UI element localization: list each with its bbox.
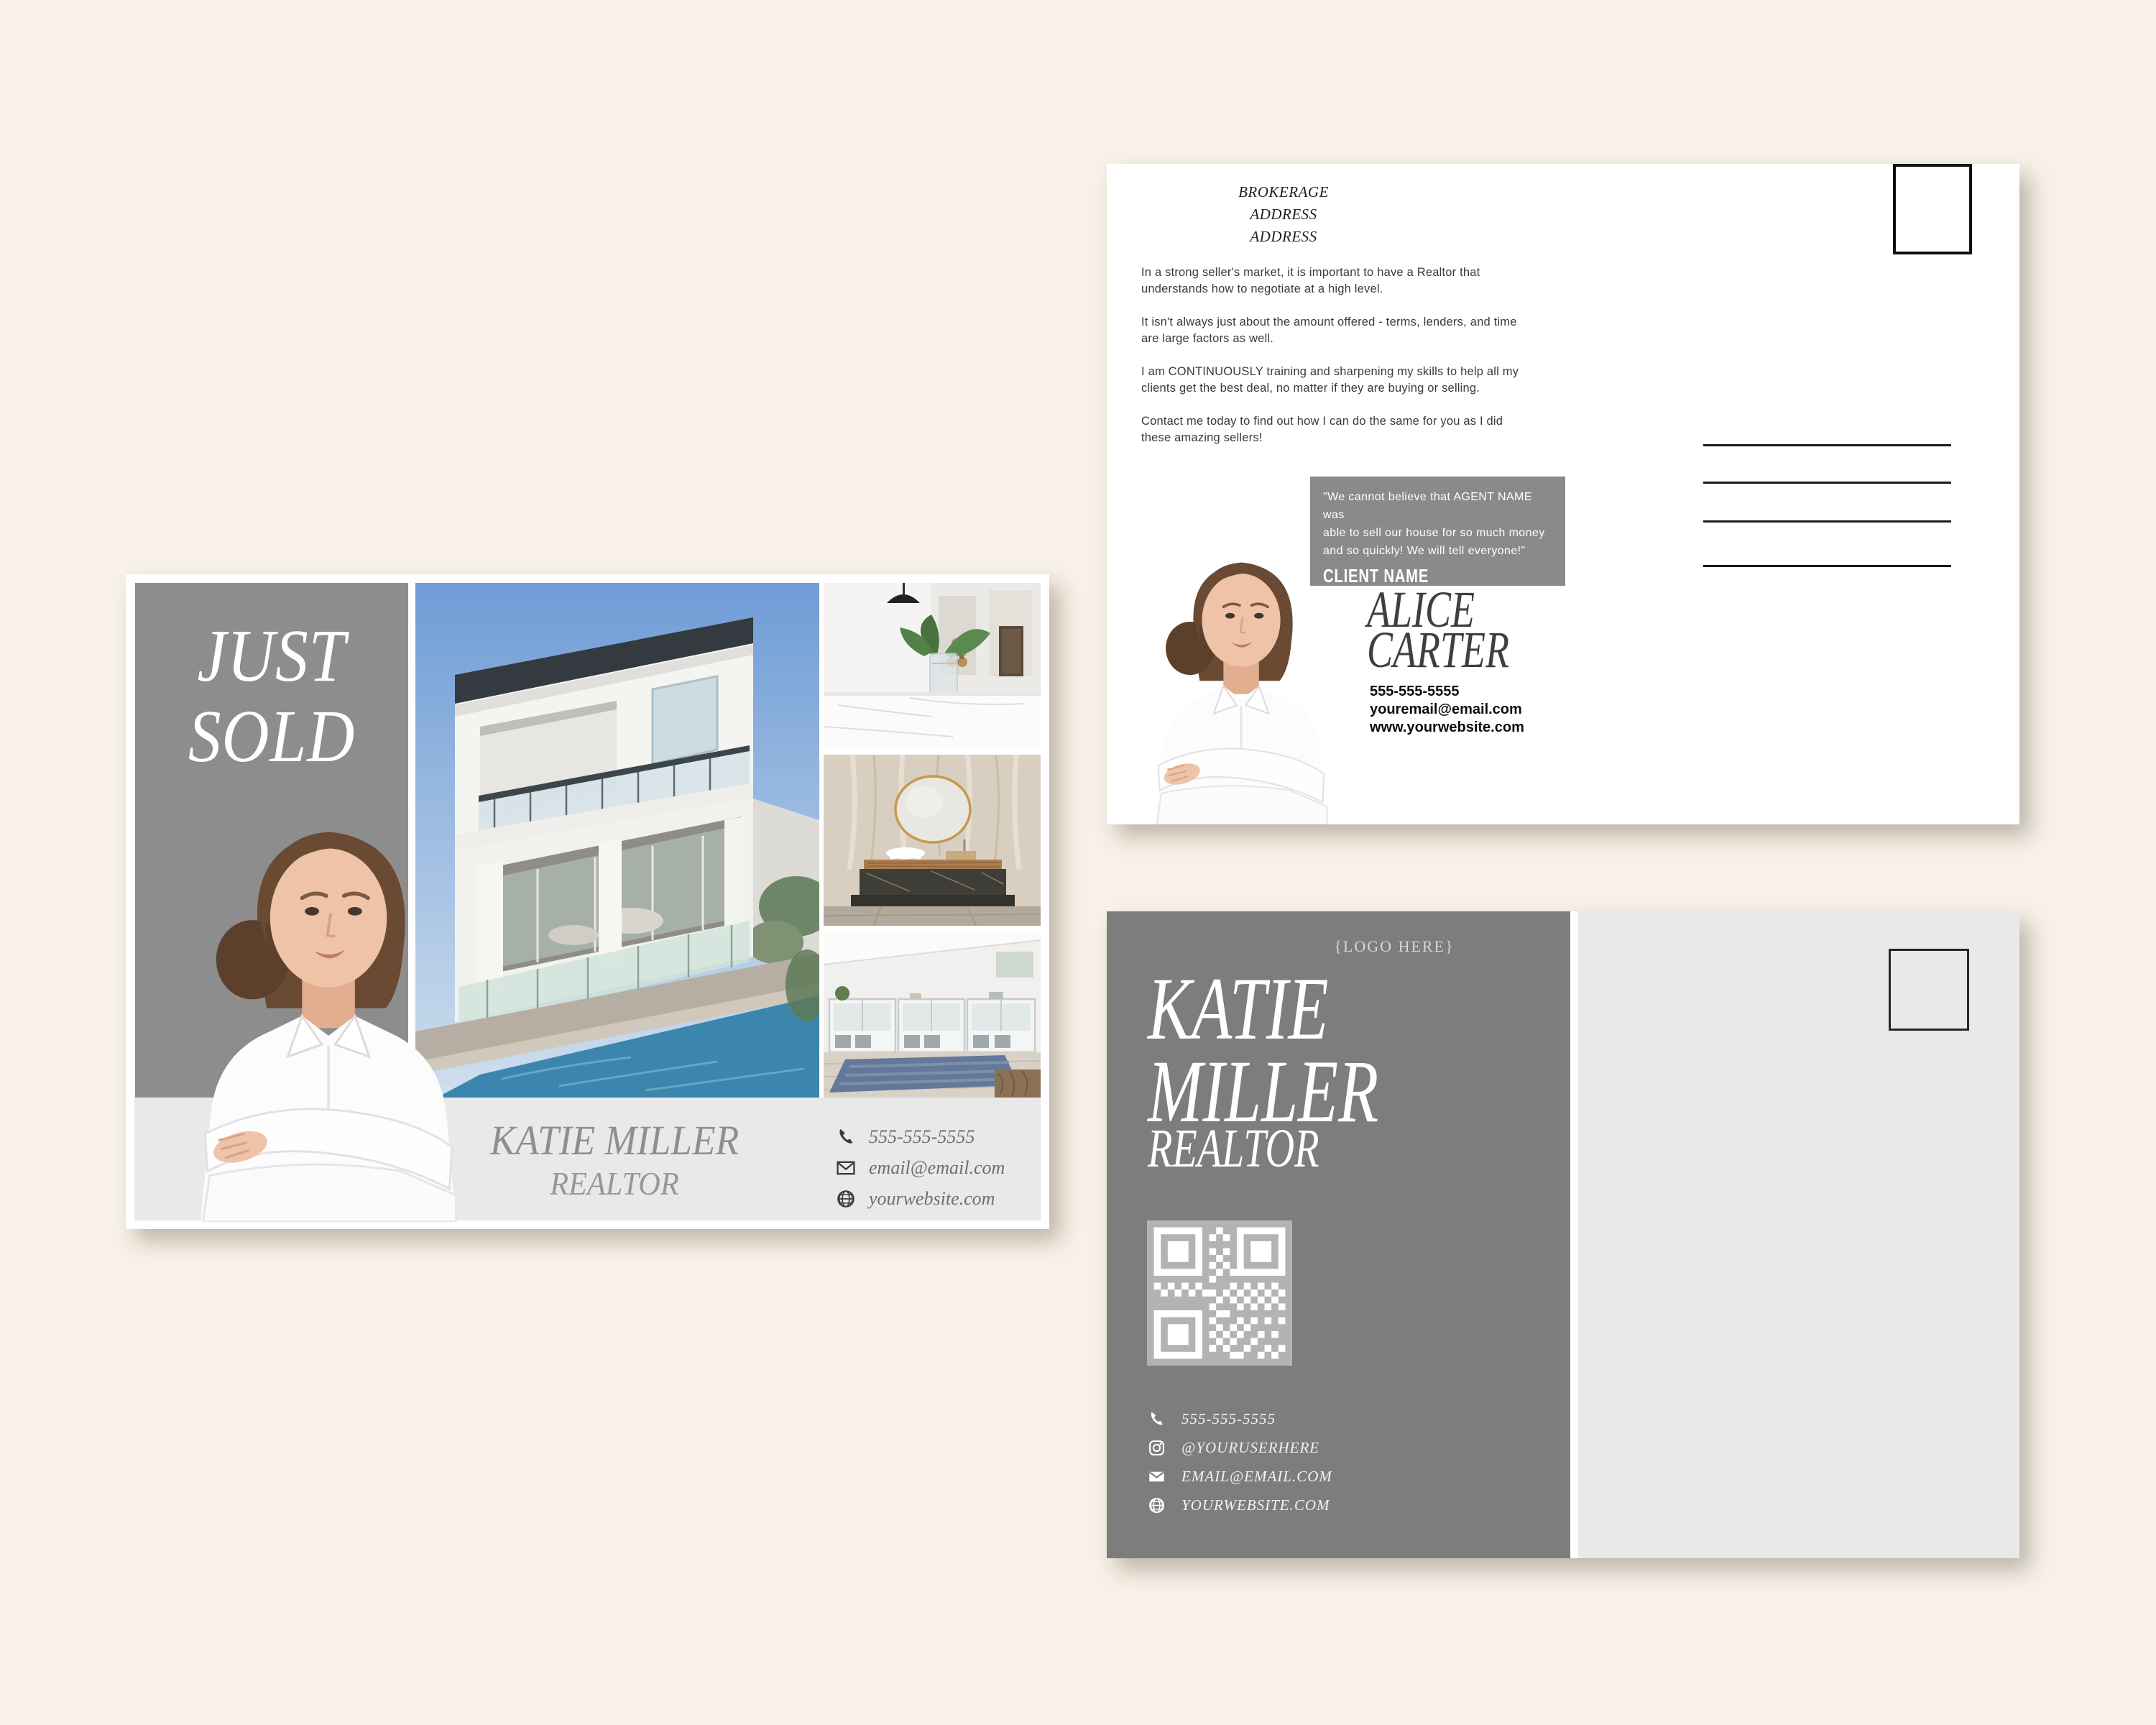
agent-photo-front <box>139 781 514 1222</box>
address-line-1: ADDRESS <box>1190 203 1377 226</box>
branding-instagram-row: @YOURUSERHERE <box>1148 1433 1332 1462</box>
agent-portrait-illustration <box>139 781 514 1222</box>
instagram-icon <box>1148 1439 1166 1457</box>
phone-icon <box>1148 1410 1166 1428</box>
logo-placeholder: {LOGO HERE} <box>1294 937 1495 956</box>
front-website-row: yourwebsite.com <box>836 1187 1005 1211</box>
marketing-message: In a strong seller's market, it is impor… <box>1141 264 1587 463</box>
paragraph-2: It isn't always just about the amount of… <box>1141 314 1587 347</box>
back-email-text: youremail@email.com <box>1370 701 1524 719</box>
agent-last-name: CARTER <box>1367 630 1509 670</box>
front-email-text: email@email.com <box>869 1157 1005 1179</box>
front-email-row: email@email.com <box>836 1156 1005 1180</box>
qr-code-illustration <box>1147 1220 1292 1366</box>
back-agent-name-block: ALICE CARTER <box>1367 589 1557 670</box>
living-room-illustration <box>824 933 1041 1098</box>
postcard-front: JUST SOLD KATIE MILLER REALTOR 555-555-5… <box>126 574 1049 1229</box>
address-line-2: ADDRESS <box>1190 226 1377 248</box>
branding-title: REALTOR <box>1148 1121 1319 1176</box>
back-website-text: www.yourwebsite.com <box>1370 719 1524 737</box>
kitchen-illustration <box>824 583 1041 747</box>
brokerage-address-block: BROKERAGE ADDRESS ADDRESS <box>1190 181 1377 248</box>
stamp-box <box>1889 949 1969 1031</box>
testimonial-box: "We cannot believe that AGENT NAME was a… <box>1310 477 1565 586</box>
brokerage-line: BROKERAGE <box>1190 181 1377 203</box>
design-canvas: JUST SOLD KATIE MILLER REALTOR 555-555-5… <box>0 0 2156 1725</box>
envelope-icon <box>836 1158 856 1178</box>
back-phone-text: 555-555-5555 <box>1370 683 1524 701</box>
branding-contact-list: 555-555-5555 @YOURUSERHERE EMAIL@EMAIL.C… <box>1148 1404 1332 1519</box>
recipient-address-line-3 <box>1703 520 1951 523</box>
headline-line-just: JUST <box>152 616 392 696</box>
recipient-address-line-4 <box>1703 565 1951 567</box>
kitchen-photo <box>824 583 1041 747</box>
front-phone-row: 555-555-5555 <box>836 1125 1005 1149</box>
front-phone-text: 555-555-5555 <box>869 1126 975 1148</box>
just-sold-headline: JUST SOLD <box>152 616 392 777</box>
branding-phone-row: 555-555-5555 <box>1148 1404 1332 1433</box>
branding-first-name: KATIE <box>1148 965 1328 1054</box>
paragraph-3: I am CONTINUOUSLY training and sharpenin… <box>1141 364 1587 397</box>
postcard-back-branding: {LOGO HERE} KATIE MILLER REALTOR 555-555… <box>1107 911 2019 1558</box>
front-contact-list: 555-555-5555 email@email.com yourwebsite… <box>836 1125 1005 1211</box>
globe-icon <box>1148 1496 1166 1514</box>
recipient-address-line-2 <box>1703 482 1951 484</box>
branding-instagram-text: @YOURUSERHERE <box>1181 1439 1319 1457</box>
recipient-address-line-1 <box>1703 444 1951 446</box>
qr-code <box>1147 1220 1292 1366</box>
branding-website-text: YOURWEBSITE.COM <box>1181 1496 1330 1514</box>
stamp-box <box>1893 164 1972 254</box>
paragraph-4: Contact me today to find out how I can d… <box>1141 413 1587 446</box>
headline-line-sold: SOLD <box>152 696 392 777</box>
envelope-icon <box>1148 1468 1166 1486</box>
branding-phone-text: 555-555-5555 <box>1181 1410 1276 1428</box>
branding-website-row: YOURWEBSITE.COM <box>1148 1491 1332 1519</box>
back-contact-list: 555-555-5555 youremail@email.com www.you… <box>1370 683 1524 737</box>
bathroom-illustration <box>824 755 1041 926</box>
bathroom-photo <box>824 755 1041 926</box>
living-room-photo <box>824 933 1041 1098</box>
paragraph-1: In a strong seller's market, it is impor… <box>1141 264 1587 298</box>
phone-icon <box>836 1127 856 1147</box>
globe-icon <box>836 1189 856 1209</box>
testimonial-quote: "We cannot believe that AGENT NAME was a… <box>1323 488 1552 560</box>
branding-email-row: EMAIL@EMAIL.COM <box>1148 1462 1332 1491</box>
postcard-back-message: BROKERAGE ADDRESS ADDRESS In a strong se… <box>1107 164 2019 824</box>
branding-email-text: EMAIL@EMAIL.COM <box>1181 1468 1332 1486</box>
front-website-text: yourwebsite.com <box>869 1188 995 1210</box>
